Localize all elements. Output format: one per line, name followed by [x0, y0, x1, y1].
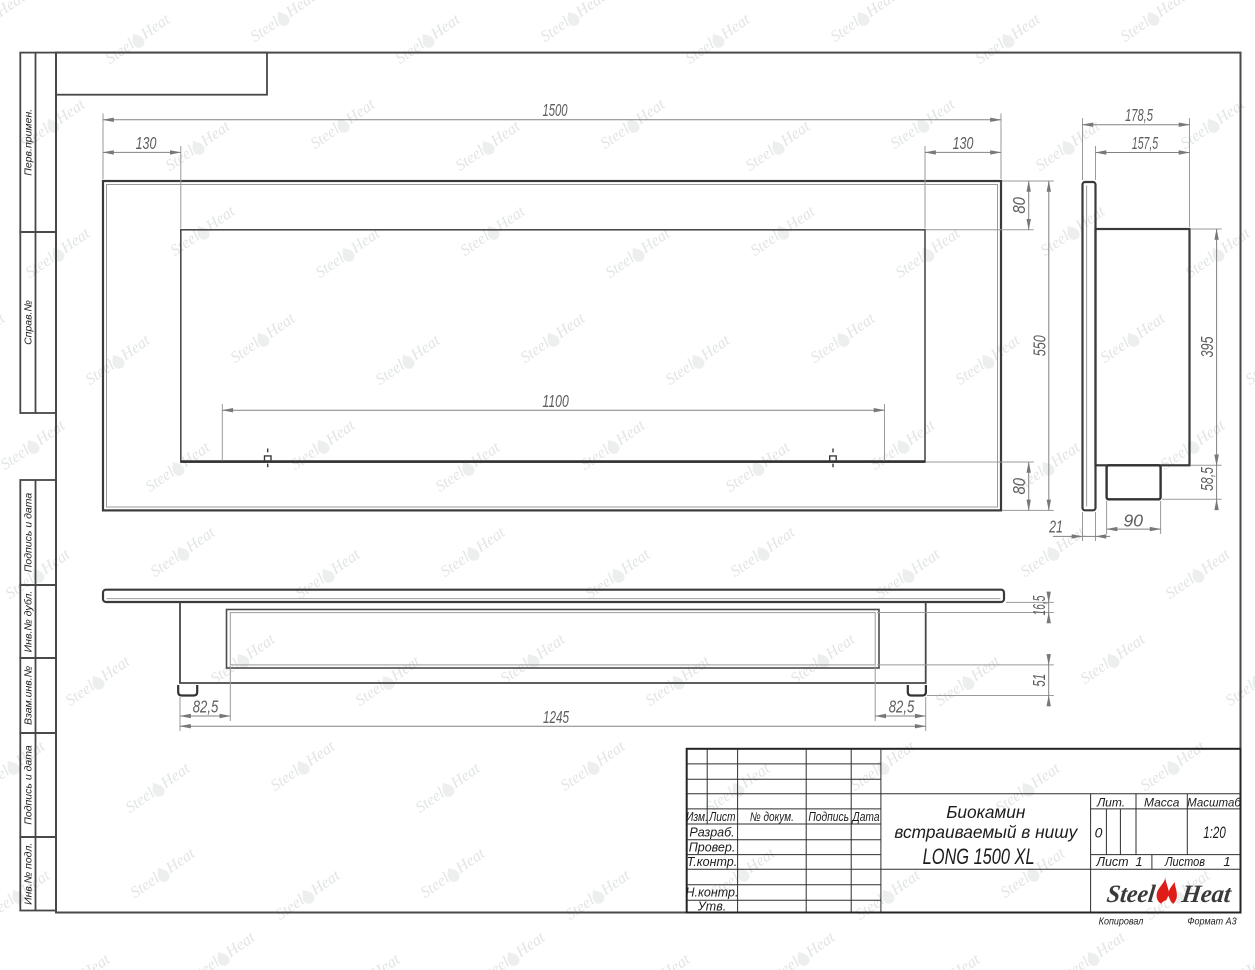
svg-text:Копировал: Копировал	[1099, 916, 1144, 928]
svg-text:Изм.: Изм.	[686, 811, 708, 824]
svg-text:Подпись и дата: Подпись и дата	[23, 493, 35, 573]
svg-text:Лит.: Лит.	[1096, 795, 1125, 809]
svg-text:130: 130	[953, 134, 974, 154]
svg-text:58,5: 58,5	[1198, 467, 1218, 491]
svg-text:Н.контр.: Н.контр.	[686, 886, 739, 900]
svg-text:51: 51	[1031, 674, 1050, 687]
svg-text:LONG 1500 XL: LONG 1500 XL	[923, 845, 1035, 870]
svg-text:Формат А3: Формат А3	[1187, 916, 1237, 928]
svg-text:Провер.: Провер.	[689, 840, 736, 854]
svg-text:Лист: Лист	[1095, 855, 1128, 869]
svg-text:Лист: Лист	[708, 811, 735, 824]
svg-text:1500: 1500	[542, 102, 568, 121]
svg-text:Взам.инв.№: Взам.инв.№	[23, 666, 35, 725]
svg-text:1245: 1245	[543, 709, 570, 728]
svg-text:Масштаб: Масштаб	[1187, 797, 1241, 809]
svg-text:Утв.: Утв.	[697, 900, 726, 914]
svg-text:Подпись: Подпись	[808, 811, 849, 824]
svg-text:Справ.№: Справ.№	[23, 300, 35, 345]
svg-text:Подпись и дата: Подпись и дата	[23, 745, 35, 825]
svg-text:157,5: 157,5	[1132, 134, 1159, 153]
svg-text:395: 395	[1198, 336, 1218, 357]
svg-text:Разраб.: Разраб.	[689, 826, 734, 840]
svg-text:82,5: 82,5	[889, 698, 915, 717]
svg-text:16,5: 16,5	[1031, 596, 1051, 616]
svg-text:550: 550	[1030, 335, 1050, 356]
svg-text:21: 21	[1048, 517, 1063, 537]
svg-text:1:20: 1:20	[1203, 824, 1225, 843]
svg-text:130: 130	[136, 134, 157, 154]
svg-text:Т.контр.: Т.контр.	[687, 855, 737, 869]
svg-text:№ докум.: № докум.	[750, 811, 794, 824]
svg-text:82,5: 82,5	[193, 698, 219, 717]
svg-text:178,5: 178,5	[1125, 107, 1153, 126]
svg-text:Масса: Масса	[1144, 795, 1180, 809]
svg-text:Дата: Дата	[851, 811, 880, 824]
svg-text:встраиваемый в нишу: встраиваемый в нишу	[894, 822, 1078, 842]
svg-text:90: 90	[1123, 511, 1143, 531]
svg-text:1100: 1100	[542, 392, 569, 412]
svg-text:Листов: Листов	[1164, 856, 1205, 870]
svg-text:0: 0	[1095, 825, 1103, 841]
svg-text:80: 80	[1010, 197, 1029, 214]
svg-text:1: 1	[1135, 854, 1142, 869]
svg-text:1: 1	[1223, 854, 1230, 869]
svg-text:Инв.№ подл.: Инв.№ подл.	[23, 843, 35, 905]
svg-text:Steel: Steel	[1105, 881, 1156, 908]
svg-text:Heat: Heat	[1179, 881, 1233, 908]
svg-text:Перв.примен.: Перв.примен.	[23, 109, 35, 176]
svg-text:Биокамин: Биокамин	[946, 802, 1026, 822]
svg-text:Инв.№ дубл.: Инв.№ дубл.	[23, 591, 35, 653]
svg-text:80: 80	[1010, 478, 1029, 495]
